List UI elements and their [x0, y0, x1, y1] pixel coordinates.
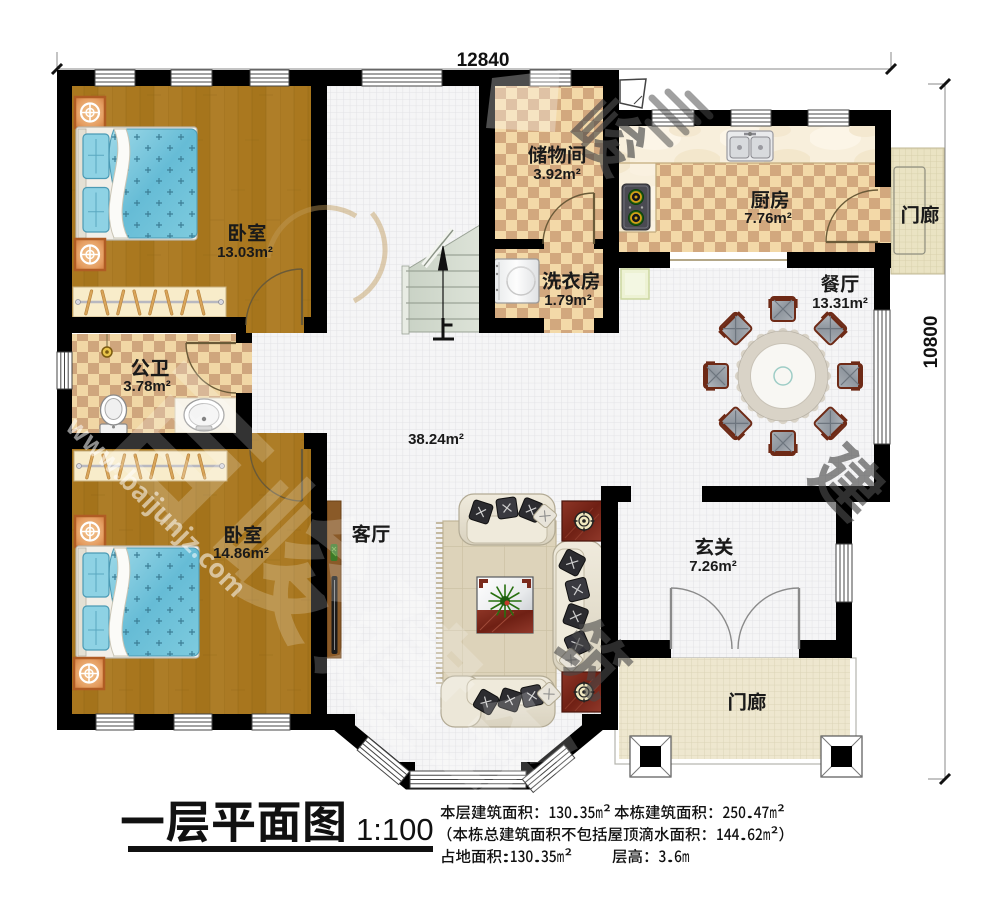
svg-text:1.79m²: 1.79m²: [544, 292, 592, 309]
svg-text:3.92m²: 3.92m²: [533, 166, 581, 183]
svg-text:3.78m²: 3.78m²: [123, 378, 171, 395]
svg-text:7.26m²: 7.26m²: [689, 558, 737, 575]
svg-text:13.03m²: 13.03m²: [217, 244, 273, 261]
svg-text:14.86m²: 14.86m²: [213, 545, 269, 562]
svg-text:12840: 12840: [457, 50, 510, 71]
svg-text:13.31m²: 13.31m²: [812, 295, 868, 312]
svg-text:1:100: 1:100: [356, 812, 434, 847]
svg-text:10800: 10800: [921, 316, 942, 369]
svg-text:38.24m²: 38.24m²: [408, 431, 464, 448]
svg-text:7.76m²: 7.76m²: [744, 210, 792, 227]
